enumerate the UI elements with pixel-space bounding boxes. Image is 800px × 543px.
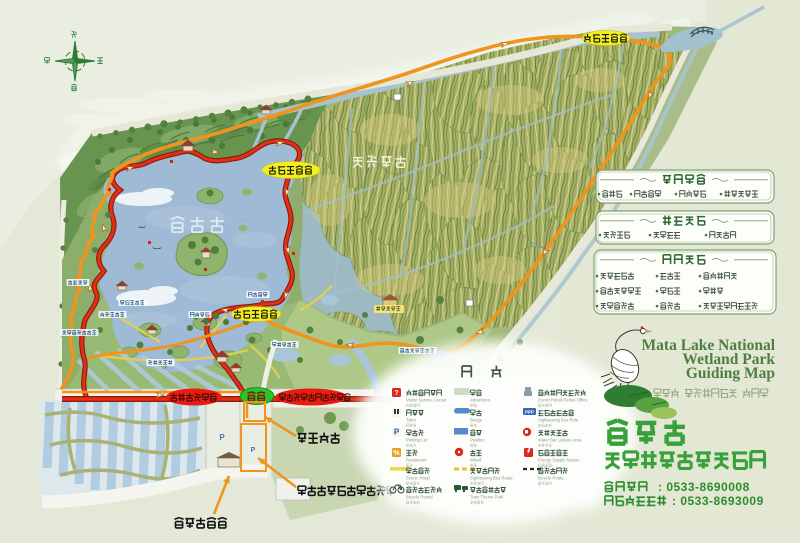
svg-text:Train Theme Park: Train Theme Park bbox=[470, 495, 504, 500]
svg-text:: 0533-8693009: : 0533-8693009 bbox=[672, 494, 764, 508]
svg-text:Scenic Road: Scenic Road bbox=[406, 476, 430, 481]
svg-text:Guiding Map: Guiding Map bbox=[686, 365, 775, 382]
svg-text:P: P bbox=[394, 428, 400, 437]
svg-text:Bicycle Route: Bicycle Route bbox=[538, 476, 564, 481]
svg-text:Parking Lot: Parking Lot bbox=[406, 438, 428, 443]
svg-text:Visitor Service Center: Visitor Service Center bbox=[406, 398, 447, 403]
svg-text:?: ? bbox=[394, 390, 398, 397]
svg-text:Sightseeing Bus Ride: Sightseeing Bus Ride bbox=[538, 418, 579, 423]
svg-text:P: P bbox=[219, 433, 225, 442]
svg-text:PPP: PPP bbox=[525, 410, 534, 415]
svg-text:Bridge: Bridge bbox=[470, 418, 483, 423]
svg-text:Wharf: Wharf bbox=[470, 458, 482, 463]
svg-text:: 0533-8690008: : 0533-8690008 bbox=[658, 480, 750, 494]
svg-text:Escort Robot Rental Office: Escort Robot Rental Office bbox=[538, 398, 588, 403]
svg-text:Water Bar Leisure Area: Water Bar Leisure Area bbox=[538, 438, 582, 443]
svg-text:Toilet: Toilet bbox=[406, 418, 417, 423]
svg-text:Energy Supply Station: Energy Supply Station bbox=[538, 458, 580, 463]
svg-text:Attractions: Attractions bbox=[470, 398, 490, 403]
svg-text:%: % bbox=[393, 450, 400, 457]
svg-text:Restaurant: Restaurant bbox=[406, 458, 427, 463]
svg-text:Pavilion: Pavilion bbox=[470, 438, 485, 443]
svg-text:P: P bbox=[251, 447, 256, 454]
svg-text:Bicycle Rental: Bicycle Rental bbox=[406, 495, 433, 500]
svg-text:Sightseeing Bus Route: Sightseeing Bus Route bbox=[470, 476, 513, 481]
